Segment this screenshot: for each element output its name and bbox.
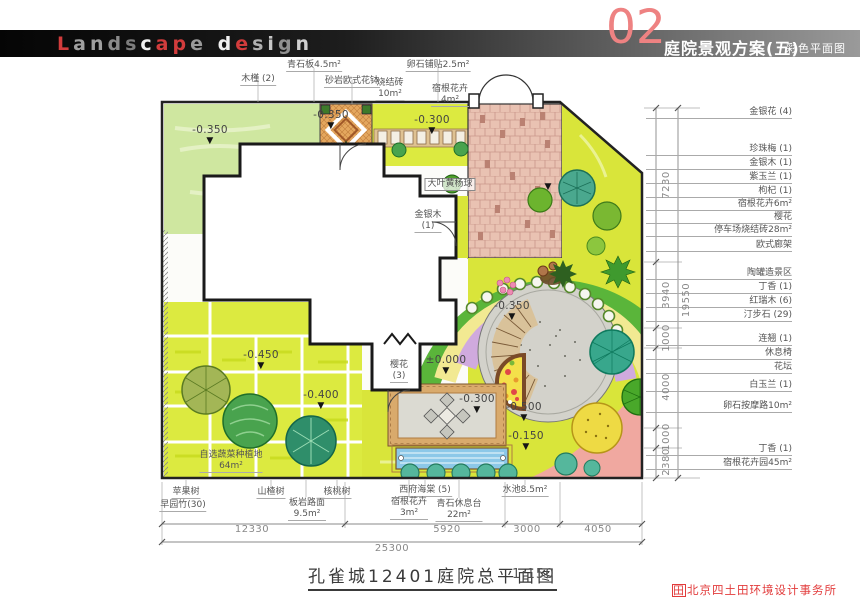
- sheet-title: 庭院景观方案(五): [664, 35, 800, 59]
- company-logo-icon: 田: [672, 584, 686, 597]
- brand-letter: s: [252, 33, 267, 55]
- company-name: 田北京四土田环境设计事务所: [672, 582, 837, 598]
- plan-canvas: [0, 0, 860, 608]
- brand-letter: i: [267, 33, 278, 55]
- brand-letter: g: [278, 33, 296, 55]
- brand-letter: d: [107, 33, 125, 55]
- sheet: { "header": { "brand_letters": [ {"t":"L…: [0, 0, 860, 608]
- brand-letter: n: [296, 33, 314, 55]
- brand-letter: [207, 33, 218, 55]
- brand-letter: p: [172, 33, 190, 55]
- sheet-subtitle: 彩色平面图: [786, 40, 846, 56]
- page-number: 02: [606, 2, 666, 54]
- brand-text: Landscape design: [57, 33, 313, 55]
- brand-letter: n: [90, 33, 108, 55]
- brand-letter: a: [156, 33, 173, 55]
- brand-letter: s: [125, 33, 140, 55]
- brand-letter: e: [190, 33, 207, 55]
- brand-letter: a: [73, 33, 90, 55]
- brand-letter: d: [218, 33, 236, 55]
- brand-letter: L: [57, 33, 73, 55]
- brand-letter: e: [235, 33, 252, 55]
- drawing-scale: 1:150: [512, 567, 554, 582]
- brand-letter: c: [140, 33, 155, 55]
